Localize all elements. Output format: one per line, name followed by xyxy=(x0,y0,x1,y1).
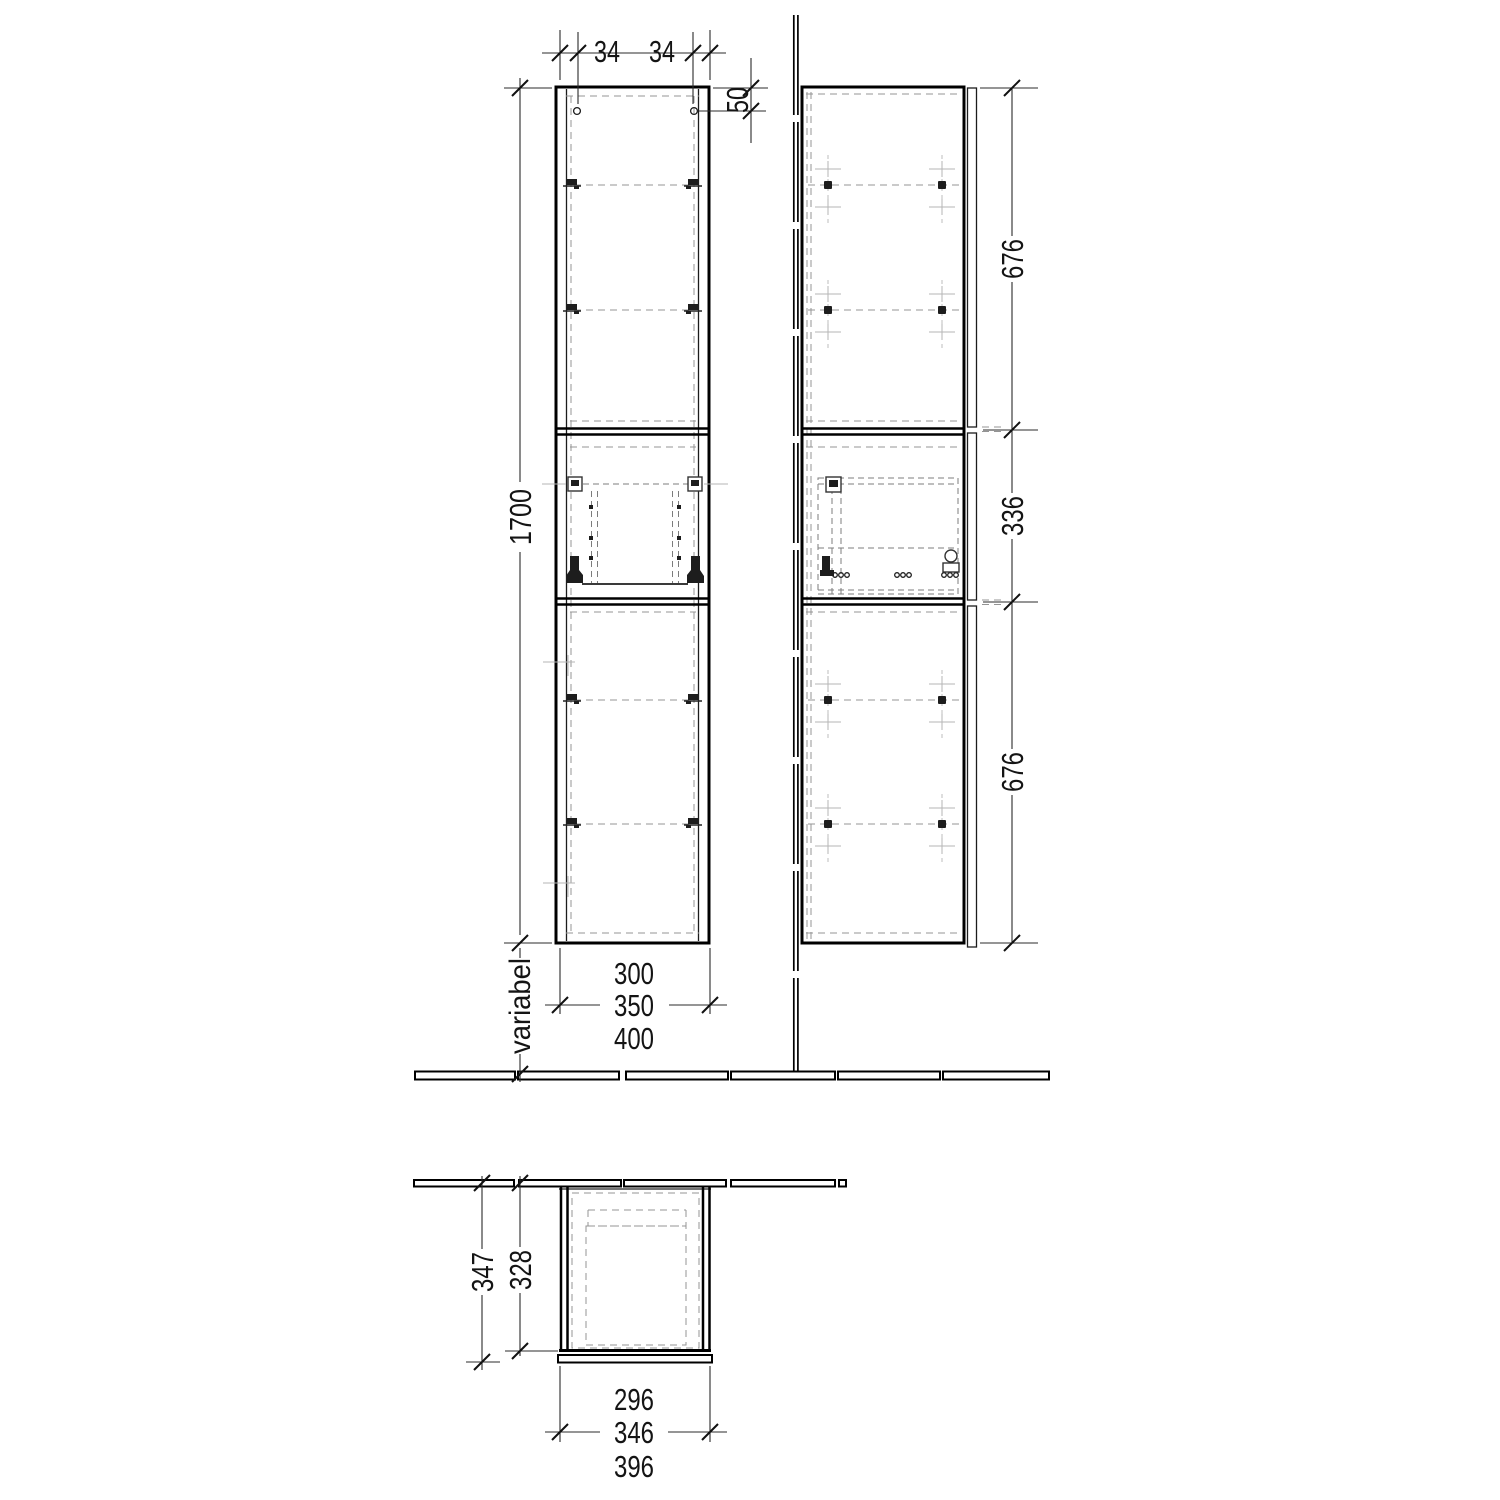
dim-label-variabel: variabel xyxy=(504,958,537,1054)
dim-label-hole-top: 50 xyxy=(720,87,755,113)
side-shelf-pins xyxy=(808,155,960,864)
plan-view xyxy=(558,1187,712,1363)
technical-drawing: 34 34 50 1700 variabel 300 350 400 xyxy=(0,0,1500,1500)
front-carcass-outline xyxy=(556,87,709,943)
dim-label-width-min: 300 xyxy=(614,956,654,991)
front-elevation xyxy=(542,87,728,943)
plan-door-front xyxy=(558,1355,712,1363)
wall-section-line xyxy=(794,15,798,1071)
drill-axis-marks xyxy=(543,655,575,897)
front-shelf-rows xyxy=(563,179,702,828)
dim-label-plan-width-mid: 346 xyxy=(614,1415,654,1450)
dim-side-chain: 676 336 676 xyxy=(980,80,1038,951)
front-drawer-mechanism xyxy=(542,477,728,584)
side-drawer-mechanism xyxy=(818,477,959,594)
dim-plan-widths: 296 346 396 xyxy=(545,1366,727,1484)
side-carcass-outline xyxy=(802,87,964,943)
dim-label-depth-carcass: 328 xyxy=(503,1250,538,1290)
dim-label-plan-width-outer: 396 xyxy=(614,1449,654,1484)
dim-label-side-bottom: 676 xyxy=(995,752,1030,792)
dim-label-depth-total: 347 xyxy=(465,1252,500,1292)
dim-label-side-middle: 336 xyxy=(995,496,1030,536)
hinge-hole-left xyxy=(574,108,581,115)
plan-hidden-lines xyxy=(572,1193,699,1348)
side-elevation xyxy=(802,87,1002,947)
dim-label-height: 1700 xyxy=(503,489,538,545)
dim-label-hole-left: 34 xyxy=(594,34,620,69)
dim-label-side-top: 676 xyxy=(995,239,1030,279)
dim-label-width-mid: 350 xyxy=(614,988,654,1023)
dim-label-width-max: 400 xyxy=(614,1021,654,1056)
dim-front-height: 1700 variabel xyxy=(503,78,552,1082)
dim-plan-depths: 347 328 xyxy=(465,1175,558,1370)
dim-front-widths: 300 350 400 xyxy=(545,948,727,1056)
dim-label-hole-right: 34 xyxy=(649,34,675,69)
floor-line xyxy=(415,1072,1049,1080)
side-divider-joints xyxy=(802,429,964,605)
dim-label-plan-width-inner: 296 xyxy=(614,1382,654,1417)
drawing-canvas: 34 34 50 1700 variabel 300 350 400 xyxy=(0,0,1500,1500)
